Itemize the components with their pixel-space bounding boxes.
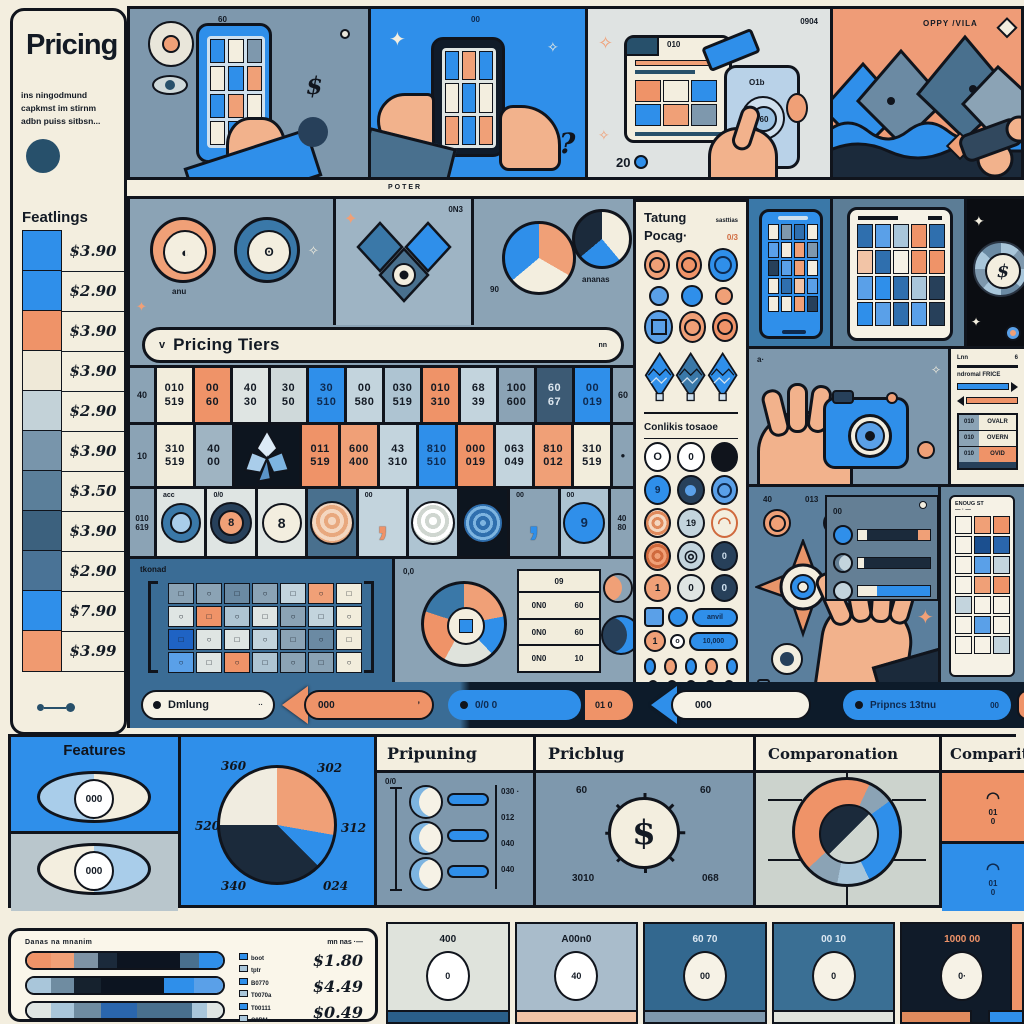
sparkle-icon: ✧ [598, 33, 613, 54]
diamond-tree-icon [644, 349, 675, 405]
donut-orange-icon: ◐ [150, 217, 216, 283]
price-value: $2.90 [62, 391, 124, 432]
icons-row: ◐ anu ʘ ✧ ✦ 0N3 ✦ [130, 199, 633, 325]
nav-pill-orange[interactable]: 000 ’ [304, 690, 434, 720]
oval-badge: 0 [812, 951, 856, 1001]
axis-line [495, 785, 497, 889]
panel-note: 20 [616, 155, 630, 170]
top-panel-hands-phone: 00 ✦ ✧ ? [371, 9, 588, 177]
tier-cell: 00580 [347, 368, 385, 422]
pie-chart [217, 765, 337, 885]
swatch-card[interactable]: 00 10 0 [772, 922, 896, 1024]
nav-strip: Dmlung ·· 000 ’ 0/0 0 01 0 000 Pripncs 1… [127, 682, 1024, 728]
mini-table-header: 09 [519, 571, 599, 593]
coin-shadow-icon [298, 117, 328, 147]
dash-dot-icon [37, 703, 75, 712]
row-label: 60 [613, 368, 633, 422]
tier-cell: 100600 [499, 368, 537, 422]
question-glyph: ? [559, 127, 575, 160]
nav-pill-edge[interactable] [1017, 690, 1024, 720]
color-swatch [22, 470, 62, 512]
sun-label: 3010 [572, 873, 594, 884]
panel-label: 0904 [800, 17, 818, 26]
tier-cell: 810012 [535, 425, 574, 486]
price-row: $3.90 [22, 431, 124, 471]
oval-badge: 00 [683, 951, 727, 1001]
pie-label: 90 [490, 285, 499, 294]
legend-price: $0.49 [313, 1003, 363, 1022]
comma-icon: , [376, 510, 388, 528]
legend-title-right: mn nas ·— [327, 939, 363, 946]
table-row: 010 OVID [959, 447, 1016, 462]
sparkle-icon: ✧ [931, 363, 941, 377]
slider-handle-icon[interactable] [957, 396, 964, 406]
pricing-tiers-banner[interactable]: v Pricing Tiers nn [142, 327, 624, 363]
subtitle: ins ningodmund capkmst im stirnm adbn pu… [21, 89, 100, 127]
sparkle-icon: ✧ [598, 127, 610, 144]
color-swatch [22, 630, 62, 672]
coin-icon [409, 857, 443, 891]
orange-coin-icon [763, 509, 791, 537]
coin-icon [409, 785, 443, 819]
dot-icon [855, 701, 863, 709]
eye-feature-icon: 000 [37, 771, 151, 823]
slider-track[interactable] [957, 383, 1009, 390]
panel-title: Pripuning [387, 744, 477, 763]
panel-label: 013 [805, 495, 818, 504]
strip-label: 4080 [608, 489, 633, 556]
nav-pill-pricing-tier[interactable]: Pripncs 13tnu 00 [843, 690, 1011, 720]
hand [499, 105, 561, 171]
poster-label: POTER [388, 184, 422, 191]
pie-small-icon [502, 221, 576, 295]
coin-tile: 8 [258, 489, 308, 556]
tier-cell: 000019 [458, 425, 497, 486]
chevron-down-icon[interactable]: v [159, 339, 165, 351]
coin-row: 19 ◠ [644, 508, 738, 538]
donut-wheel-chart [792, 777, 902, 887]
color-swatch [22, 390, 62, 432]
package-pill-button[interactable]: anvil [692, 608, 738, 627]
tier-cell: 3050 [271, 368, 309, 422]
puzzle-wheel-icon [421, 581, 507, 667]
segmented-bar [25, 1001, 225, 1020]
table-row: 010 OVALR [959, 415, 1016, 431]
nav-pill-orange-frag[interactable]: 01 0 [585, 690, 633, 720]
tier-cell: 011519 [302, 425, 341, 486]
mini-table: 09 0N060 0N060 0N010 [517, 569, 601, 673]
tier-cell: 43310 [380, 425, 419, 486]
matrix-label: tkonad [140, 565, 166, 574]
eye-feature-icon: 000 [37, 843, 151, 895]
white-coin-icon [771, 643, 803, 675]
sparkle-icon: ✧ [547, 39, 559, 56]
dot-icon [460, 701, 468, 709]
compare-cell-orange[interactable]: ◠ 01 0 [942, 773, 1024, 844]
pripuning-panel: Pripuning 0/0 030 · 012 040 040 [377, 737, 536, 905]
bar [447, 793, 489, 806]
tier-cell: 6839 [461, 368, 499, 422]
list-item[interactable] [833, 553, 931, 573]
diamond-cluster-icon [350, 215, 458, 315]
price-mini-table: 010 OVALR 010 OVERN 010 OVID [957, 413, 1018, 470]
sun-label: 60 [700, 785, 711, 796]
panel-header: Pripuning [377, 737, 533, 773]
phone [759, 209, 823, 339]
axis-label: 0/0 [385, 777, 396, 786]
spiral-icon [462, 502, 504, 544]
blue-dot [634, 155, 648, 169]
row-label: ● [613, 425, 633, 486]
spiral-icon [644, 508, 671, 538]
price-row: $3.90 [22, 511, 124, 551]
segmented-bar [25, 951, 225, 970]
top-panel-browser: 0904 ✧ ✧ 010 O1b 60 [588, 9, 833, 177]
sidebar: Pricing ins ningodmund capkmst im stirnm… [10, 8, 127, 735]
legend-price: $1.80 [313, 951, 363, 970]
small-circles-row [644, 658, 738, 675]
table-row: 010 OVERN [959, 431, 1016, 447]
list-item[interactable] [833, 581, 931, 601]
page-title: Pricing [26, 29, 117, 62]
coin-tile [308, 489, 358, 556]
donut-label: anu [172, 287, 186, 296]
price-legend: $3.90 $2.90 $3.90 $3.90 $2.90 $3.90 $3.5… [22, 231, 124, 671]
mini-table-row: 0N010 [519, 646, 599, 671]
color-swatch [22, 350, 62, 392]
package-subtitle: Pocag· [644, 228, 687, 243]
coin-tile: 0/0 8 [207, 489, 257, 556]
sliders-card: Lnn6 ndromal FRICE 010 OVALR 010 OVERN [951, 349, 1024, 487]
tier-cell: 4030 [233, 368, 271, 422]
small-dot [340, 29, 350, 39]
coin-tile: 00 , [359, 489, 409, 556]
swatch-card[interactable]: 1000 00 0· [900, 922, 1024, 1024]
orange-dot [1005, 325, 1021, 341]
price-value: $3.90 [62, 311, 124, 352]
color-swatch [22, 270, 62, 312]
top-panel-phone-list: 60 $ [130, 9, 371, 177]
price-row: $3.90 [22, 231, 124, 271]
panel-label: 00 [471, 15, 480, 24]
central-band: ◐ anu ʘ ✧ ✦ 0N3 ✦ [127, 196, 1024, 682]
pie-value: 024 [323, 879, 348, 893]
badge: O1b [749, 78, 765, 87]
mini-table-row: 0N060 [519, 620, 599, 647]
nav-pill-cream[interactable]: 000 [671, 690, 811, 720]
price-row: $3.90 [22, 311, 124, 351]
diamond-tree-icon [707, 349, 738, 405]
puzzle-panel: 0,0 09 0N060 0N060 0N010 [395, 559, 633, 685]
top-strip: 60 $ 00 ✦ ✧ [127, 6, 1024, 180]
panel-title: Pricblug [548, 744, 624, 763]
tier-cell: 0060 [195, 368, 233, 422]
list-card: 00 [825, 495, 939, 601]
coin-tile [409, 489, 459, 556]
dollar-sun-coin: $ [608, 797, 680, 869]
bracket-right [364, 581, 374, 673]
price-value: $3.90 [62, 431, 124, 472]
rose-icon [310, 501, 354, 545]
list-item[interactable] [833, 525, 931, 545]
orange-blob [786, 93, 808, 123]
price-value: $7.90 [62, 591, 124, 632]
price-value: $2.90 [62, 271, 124, 312]
swatch-card[interactable]: 60 70 00 [643, 922, 767, 1024]
sun-label: 60 [576, 785, 587, 796]
tier-cell: 310519 [574, 425, 613, 486]
coin-row [644, 310, 738, 344]
puzzle-label: 0,0 [403, 567, 414, 576]
sparkle-icon: ✦ [917, 605, 934, 630]
price-row: $2.90 [22, 271, 124, 311]
price-row: $3.99 [22, 631, 124, 671]
tier-grid-row2: 10 310519 4000 011519 600400 43310 81051… [130, 425, 633, 489]
comparital-panel: Comparital ◠ 01 0 ◠ 01 0 01 0.0 [942, 737, 1024, 905]
color-swatch [22, 510, 62, 552]
dollar-wheel-icon: $ [973, 241, 1024, 297]
nav-pill-building[interactable]: Dmlung ·· [141, 690, 275, 720]
mini-table-row: 0N060 [519, 593, 599, 620]
matrix-panel: tkonad [130, 559, 395, 685]
legend-entry: T00111 C9PM [239, 1003, 271, 1024]
price-value: $3.90 [62, 511, 124, 552]
eye-icon [152, 75, 188, 95]
row-label: 40 [130, 368, 157, 422]
coin-row [644, 285, 738, 307]
oval-badge: 0 [426, 951, 470, 1001]
tier-cell: 30510 [309, 368, 347, 422]
color-swatch [22, 550, 62, 592]
camera-icon [823, 397, 909, 469]
tier-cell: 600400 [341, 425, 380, 486]
row-label: 10 [130, 425, 157, 486]
tablet [847, 207, 953, 341]
phone-panel [749, 199, 833, 349]
price-row: $3.90 [22, 351, 124, 391]
panel-label: 40 [763, 495, 772, 504]
pie-label: ananas [582, 275, 610, 284]
tier-cell: 00019 [575, 368, 613, 422]
tick-label: 030 · [501, 787, 519, 796]
banner-right-label: nn [598, 342, 607, 349]
legend-title: Danas na mnanim [25, 939, 92, 946]
price-value: $3.99 [62, 631, 124, 672]
dot-icon [153, 701, 161, 709]
package-panel: Tatung sasttias Pocag· 0/3 [633, 199, 749, 685]
mountains-illustration [833, 9, 1021, 177]
tier-cell: 310519 [157, 425, 196, 486]
legend-entry: boot tptr [239, 953, 264, 976]
color-swatch [22, 590, 62, 632]
dollar-glyph: $ [306, 71, 323, 100]
panel-title: Features [11, 737, 178, 763]
top-panel-mountains: OPPY /VILA [833, 9, 1021, 177]
tick-label: 040 [501, 839, 514, 848]
compare-cell-blue[interactable]: ◠ 01 0 [942, 844, 1024, 911]
pie-value: 302 [317, 761, 342, 775]
tier-cell: 810510 [419, 425, 458, 486]
price-value: $2.90 [62, 551, 124, 592]
price-value: $3.90 [62, 351, 124, 392]
pill-row: anvil [644, 607, 738, 627]
bar [447, 865, 489, 878]
dollar-wheel-panel: ✦ ✦ $ [967, 199, 1024, 349]
color-swatch [22, 430, 62, 472]
pill-row: 1 o 10,000 [644, 630, 738, 652]
legend-card: Danas na mnanim mn nas ·— boot tptr B077… [8, 928, 378, 1022]
coin-row: O 0 [644, 442, 738, 472]
swatch-card[interactable]: 400 0 [386, 922, 510, 1024]
price-row: $7.90 [22, 591, 124, 631]
accent-dot-icon [26, 139, 60, 173]
coin-tile [460, 489, 510, 556]
tier-cell: 4000 [196, 425, 235, 486]
pie-value: 520 [195, 819, 220, 833]
camera-panel: a· ✧ [749, 349, 951, 487]
sparkle-icon: ✦ [973, 213, 985, 230]
price-row: $2.90 [22, 551, 124, 591]
grid-card-panel: ENOUG ST — · — [941, 487, 1024, 685]
comparonation-panel: Comparonation [756, 737, 942, 905]
segmented-bar [25, 976, 225, 995]
tick-label: 040 [501, 865, 514, 874]
donut-blue-icon: ʘ [234, 217, 300, 283]
features-panel: Features 000 000 [11, 737, 181, 905]
features-header: Featlings [22, 209, 88, 226]
sparkle-icon: ✦ [136, 299, 147, 315]
tier-cell: 063049 [496, 425, 535, 486]
pie-panel: 360 302 520 312 340 024 [181, 737, 377, 905]
feature-matrix [168, 583, 362, 673]
tree-row [644, 349, 738, 405]
coin-row: 1 0 0 [644, 574, 738, 602]
price-row: $2.90 [22, 391, 124, 431]
bracket-left [148, 581, 158, 673]
panel-header: Comparonation [756, 737, 939, 773]
diamond-tree-icon [675, 349, 706, 405]
crescent-icon [603, 573, 633, 603]
coin-tile: 00 9 [561, 489, 608, 556]
coin-tile: 00 , [510, 489, 560, 556]
coins-strip: 010619 acc 0/0 8 8 00 , 00 , 00 9 4080 [130, 489, 633, 559]
comma-icon: , [528, 510, 540, 528]
panel-header: Pricblug [536, 737, 753, 773]
panel-note: a· [757, 355, 764, 364]
slider-track[interactable] [957, 365, 1018, 368]
package-title: Tatung [644, 210, 686, 225]
pie-value: 312 [341, 821, 366, 835]
grid-card: ENOUG ST — · — [949, 495, 1015, 677]
coin-icon [409, 821, 443, 855]
bell-icon: ◠ [986, 788, 1000, 808]
tier-cell: 030519 [385, 368, 423, 422]
pricblug-panel: Pricblug $ 60 60 3010 068 [536, 737, 756, 905]
bottom-panels: Features 000 000 360 302 520 312 340 024… [8, 734, 1016, 908]
spiral-icon [644, 541, 671, 571]
target-center [162, 35, 180, 53]
coin-row: ◎ 0 [644, 541, 738, 571]
rose-icon [411, 501, 455, 545]
sparkle-icon: ✦ [971, 315, 981, 329]
crystal-icon [241, 428, 293, 484]
coin-row [644, 248, 738, 282]
sun-label: 068 [702, 873, 719, 884]
panel-header: Comparital [942, 737, 1024, 773]
tick-label: 012 [501, 813, 514, 822]
price-row: $3.50 [22, 471, 124, 511]
color-swatch [22, 310, 62, 352]
tablet-panel [833, 199, 967, 349]
crystal-cell [235, 425, 303, 486]
price-value: $3.90 [62, 231, 124, 272]
slider-handle-icon[interactable] [1011, 382, 1018, 392]
list-card-label: 00 [833, 507, 842, 516]
tier-cell: 6067 [537, 368, 575, 422]
oval-badge: 40 [554, 951, 598, 1001]
swatch-card[interactable]: A00n0 40 [515, 922, 639, 1024]
legend-price: $4.49 [313, 977, 363, 996]
pie-value: 360 [221, 759, 246, 773]
phone [431, 37, 505, 157]
pie-value: 340 [221, 879, 246, 893]
nav-pill-blue[interactable]: 0/0 0 [448, 690, 581, 720]
legend-entry: B0770 T0070a [239, 978, 271, 1001]
orange-ring [917, 441, 935, 459]
sparkle-icon: ✦ [389, 27, 406, 52]
bell-icon: ◠ [986, 859, 1000, 879]
tier-grid-row1: 40 010519 0060 4030 3050 30510 00580 030… [130, 365, 633, 425]
tab-label: 010 [667, 40, 680, 49]
strip-label: 010619 [130, 489, 157, 556]
coin-tile: acc [157, 489, 207, 556]
color-swatch [22, 230, 62, 272]
package-pill-button[interactable]: 10,000 [689, 632, 738, 651]
pricing-infographic: Pricing ins ningodmund capkmst im stirnm… [0, 0, 1024, 1024]
sparkle-icon: ✧ [308, 243, 319, 259]
swatch-cards: 400 0 A00n0 40 60 70 00 00 10 0 1000 00 … [386, 922, 1024, 1024]
bar [447, 829, 489, 842]
panel-title: Comparonation [768, 745, 898, 763]
section-header: Conlikis tosaoe [644, 422, 718, 433]
banner-title: Pricing Tiers [173, 335, 280, 355]
panel-title: Comparital [950, 745, 1024, 763]
axis-line [395, 789, 397, 889]
tier-cell: 010310 [423, 368, 461, 422]
coin-row: 9 [644, 475, 738, 505]
tier-cell: 010519 [157, 368, 195, 422]
pie-small-icon [572, 209, 632, 269]
slider-track[interactable] [966, 397, 1018, 404]
price-value: $3.50 [62, 471, 124, 512]
oval-badge: 0· [940, 951, 984, 1001]
diamond-label: 0N3 [448, 205, 463, 214]
